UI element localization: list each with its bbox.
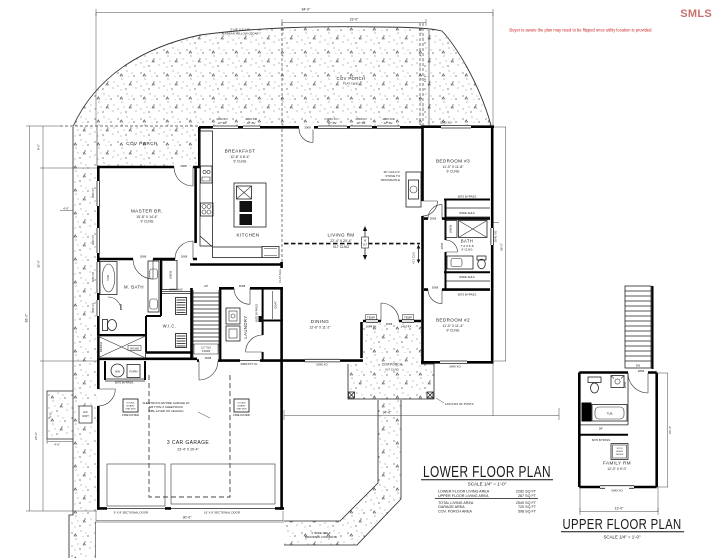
- svg-text:LINEN: LINEN: [169, 271, 173, 280]
- svg-text:MASTER BR.: MASTER BR.: [131, 209, 163, 214]
- svg-text:WH: WH: [115, 370, 120, 374]
- svg-text:287 SQ FT: 287 SQ FT: [518, 494, 537, 498]
- svg-text:20'-4": 20'-4": [668, 426, 672, 434]
- svg-text:3068: 3068: [432, 286, 439, 290]
- svg-text:3068: 3068: [430, 217, 437, 221]
- svg-text:2650 SH: 2650 SH: [92, 188, 95, 198]
- svg-text:STKD: STKD: [617, 448, 623, 450]
- svg-text:6'-0": 6'-0": [49, 412, 53, 418]
- svg-text:6070 BYPASS: 6070 BYPASS: [115, 381, 134, 385]
- svg-text:3068: 3068: [181, 255, 188, 259]
- svg-text:COV PORCH: COV PORCH: [337, 76, 366, 81]
- svg-text:ONE SIDE: ONE SIDE: [125, 409, 136, 411]
- svg-text:6070 BYPASS: 6070 BYPASS: [458, 195, 477, 199]
- svg-text:2668: 2668: [140, 255, 147, 259]
- svg-text:BOARD: BOARD: [127, 405, 135, 408]
- svg-text:3068: 3068: [386, 322, 393, 326]
- svg-text:NICHE: NICHE: [130, 347, 139, 351]
- svg-text:9' CLNG: 9' CLNG: [234, 160, 247, 164]
- svg-text:6070 BYPASS: 6070 BYPASS: [255, 304, 259, 323]
- svg-text:FLAT CLNG: FLAT CLNG: [343, 82, 359, 86]
- svg-text:9' X 8' SECTIONAL DOOR: 9' X 8' SECTIONAL DOOR: [114, 511, 148, 515]
- svg-text:M. BATH: M. BATH: [124, 285, 144, 290]
- svg-text:BROOMED CONCRETE: BROOMED CONCRETE: [305, 535, 337, 539]
- svg-text:BATH: BATH: [461, 239, 473, 244]
- svg-text:WIRE SHLF: WIRE SHLF: [169, 289, 183, 292]
- svg-text:3068: 3068: [205, 356, 212, 360]
- svg-text:Buyer is aware the plan may ne: Buyer is aware the plan may need to be f…: [509, 28, 652, 33]
- svg-text:BENCH: BENCH: [99, 342, 103, 352]
- svg-text:VLT: VLT: [363, 245, 368, 247]
- svg-text:FIRE RATED: FIRE RATED: [233, 413, 250, 417]
- svg-text:SCALE 1/4" = 1'-0": SCALE 1/4" = 1'-0": [468, 482, 507, 487]
- svg-text:2868: 2868: [440, 242, 444, 249]
- svg-text:4'-0": 4'-0": [63, 207, 69, 211]
- svg-text:FLAT CLG: FLAT CLG: [278, 268, 282, 282]
- svg-text:UNIT: UNIT: [82, 414, 89, 418]
- svg-text:12" BV: 12" BV: [384, 121, 393, 125]
- svg-text:3068: 3068: [180, 164, 187, 168]
- svg-text:FIRE RATED: FIRE RATED: [122, 413, 139, 417]
- svg-text:COV. PORCH AREA: COV. PORCH AREA: [438, 509, 472, 513]
- svg-text:30'-0": 30'-0": [183, 516, 192, 520]
- svg-text:5040 XO: 5040 XO: [449, 365, 461, 369]
- svg-text:1640 FX: 1640 FX: [366, 325, 377, 329]
- svg-text:3068: 3068: [239, 284, 246, 288]
- svg-text:12'-8" X 8'-4": 12'-8" X 8'-4": [230, 155, 250, 159]
- svg-text:SOUND: SOUND: [127, 403, 135, 405]
- svg-text:TUB: TUB: [106, 275, 110, 281]
- svg-text:1462 FX: 1462 FX: [401, 325, 412, 329]
- svg-text:36'-0": 36'-0": [500, 243, 504, 251]
- svg-text:UP: UP: [204, 284, 208, 288]
- svg-text:BREAKFAST: BREAKFAST: [225, 149, 256, 154]
- svg-text:12" BV: 12" BV: [247, 121, 256, 125]
- svg-text:5040 XO: 5040 XO: [440, 121, 452, 125]
- svg-text:COV PORCH: COV PORCH: [126, 141, 157, 146]
- svg-text:ALASKAN YELLOW CEDAR: ALASKAN YELLOW CEDAR: [221, 32, 258, 36]
- svg-text:TEMP: TEMP: [367, 316, 375, 320]
- svg-text:UPPER FLOOR PLAN: UPPER FLOOR PLAN: [563, 517, 682, 533]
- svg-text:BEDROOM #3: BEDROOM #3: [436, 159, 470, 164]
- svg-text:24'-0": 24'-0": [34, 432, 38, 440]
- svg-text:VLT CLNG: VLT CLNG: [385, 368, 400, 372]
- svg-text:12" BV: 12" BV: [328, 121, 337, 125]
- svg-text:DINING: DINING: [311, 319, 330, 324]
- svg-text:15'-8" X 14'-4": 15'-8" X 14'-4": [136, 215, 158, 219]
- svg-text:11'-0" X 11'-8": 11'-0" X 11'-8": [443, 165, 465, 169]
- svg-text:LAUNDRY: LAUNDRY: [243, 315, 248, 338]
- svg-text:ONE SIDE: ONE SIDE: [236, 409, 247, 411]
- svg-text:COAT: COAT: [274, 301, 278, 309]
- svg-text:5040 XO: 5040 XO: [611, 489, 623, 493]
- svg-text:DRYER: DRYER: [616, 454, 624, 456]
- svg-text:STAIRS: STAIRS: [202, 350, 211, 353]
- svg-text:TEMP: TEMP: [404, 316, 412, 320]
- svg-text:WIRE SHLF: WIRE SHLF: [459, 275, 475, 279]
- svg-text:3068: 3068: [304, 126, 311, 130]
- svg-text:16'-2": 16'-2": [423, 75, 427, 82]
- svg-text:3 CAR GARAGE: 3 CAR GARAGE: [167, 440, 210, 446]
- svg-text:598 SQ FT: 598 SQ FT: [518, 509, 537, 513]
- svg-text:22'-4" X 20'-4": 22'-4" X 20'-4": [330, 239, 352, 243]
- svg-text:LINEN: LINEN: [449, 225, 453, 234]
- svg-text:WSHR: WSHR: [616, 451, 623, 453]
- svg-text:HI: HI: [364, 241, 367, 243]
- svg-text:LOWER FLOOR PLAN: LOWER FLOOR PLAN: [423, 464, 551, 481]
- svg-text:DN: DN: [636, 364, 640, 368]
- svg-text:12" BV: 12" BV: [218, 121, 227, 125]
- svg-text:WIRE SHLF: WIRE SHLF: [459, 211, 475, 215]
- svg-text:3040 SH: 3040 SH: [92, 303, 95, 313]
- svg-text:KITCHEN: KITCHEN: [237, 233, 260, 238]
- svg-text:12'-6" X 11'-2": 12'-6" X 11'-2": [309, 325, 331, 329]
- svg-text:LIVING RM: LIVING RM: [327, 233, 354, 238]
- svg-text:FURN: FURN: [129, 370, 137, 374]
- svg-text:9' CLNG: 9' CLNG: [462, 248, 474, 252]
- svg-text:64'-0": 64'-0": [302, 8, 311, 12]
- svg-text:62'-0": 62'-0": [25, 313, 29, 322]
- svg-text:W.I.C.: W.I.C.: [163, 324, 177, 329]
- svg-text:23'-4" X 29'-4": 23'-4" X 29'-4": [177, 448, 199, 452]
- svg-text:32'-0": 32'-0": [37, 260, 41, 268]
- svg-text:34'-0": 34'-0": [383, 411, 392, 415]
- svg-text:23'-0": 23'-0": [350, 18, 359, 22]
- svg-text:TRIM MANTLE: TRIM MANTLE: [380, 178, 400, 182]
- svg-text:SCALE 1/4" = 1'-0": SCALE 1/4" = 1'-0": [603, 535, 640, 540]
- svg-text:SOUND: SOUND: [238, 403, 246, 405]
- svg-text:(DBL LAYER ON CEILING): (DBL LAYER ON CEILING): [148, 409, 183, 413]
- svg-text:3040 VO: 3040 VO: [494, 230, 498, 242]
- svg-text:12" BV: 12" BV: [357, 121, 366, 125]
- svg-text:2650 SH: 2650 SH: [92, 235, 95, 245]
- svg-text:9' CLNG: 9' CLNG: [447, 170, 460, 174]
- svg-text:6070 BYPASS: 6070 BYPASS: [592, 438, 611, 442]
- svg-text:3050 XO: 3050 XO: [92, 272, 95, 282]
- svg-text:VLT CLNG: VLT CLNG: [333, 245, 350, 249]
- svg-text:FAMILY RM: FAMILY RM: [603, 461, 631, 466]
- svg-text:10X10 RS OF POSTS: 10X10 RS OF POSTS: [445, 402, 474, 406]
- svg-text:9' CLNG: 9' CLNG: [447, 329, 460, 333]
- svg-text:13'-0": 13'-0": [615, 507, 624, 511]
- svg-text:12'-0" X 9'-0": 12'-0" X 9'-0": [607, 467, 627, 471]
- svg-text:BOARD: BOARD: [238, 405, 246, 408]
- svg-text:5040 XO: 5040 XO: [316, 363, 328, 367]
- svg-text:11'-0" X 11'-4": 11'-0" X 11'-4": [443, 324, 465, 328]
- svg-text:COV PORCH: COV PORCH: [382, 363, 403, 367]
- svg-text:TUB: TUB: [607, 412, 613, 416]
- svg-text:9' CLNG: 9' CLNG: [141, 220, 154, 224]
- svg-text:16' X 8' SECTIONAL DOOR: 16' X 8' SECTIONAL DOOR: [204, 511, 240, 515]
- svg-text:58": 58": [599, 427, 603, 431]
- svg-text:3068 PKT SL: 3068 PKT SL: [240, 362, 258, 366]
- svg-text:8'-0": 8'-0": [37, 144, 41, 150]
- svg-text:SMLS: SMLS: [680, 8, 712, 20]
- svg-text:BEDROOM #2: BEDROOM #2: [436, 318, 470, 323]
- svg-text:4'-0": 4'-0": [54, 443, 60, 447]
- svg-text:UPPER FLOOR LIVING AREA: UPPER FLOOR LIVING AREA: [438, 494, 489, 498]
- svg-text:2868: 2868: [638, 369, 645, 373]
- svg-text:6070 BYPASS: 6070 BYPASS: [458, 293, 477, 297]
- svg-text:VLT CLG: VLT CLG: [412, 251, 416, 264]
